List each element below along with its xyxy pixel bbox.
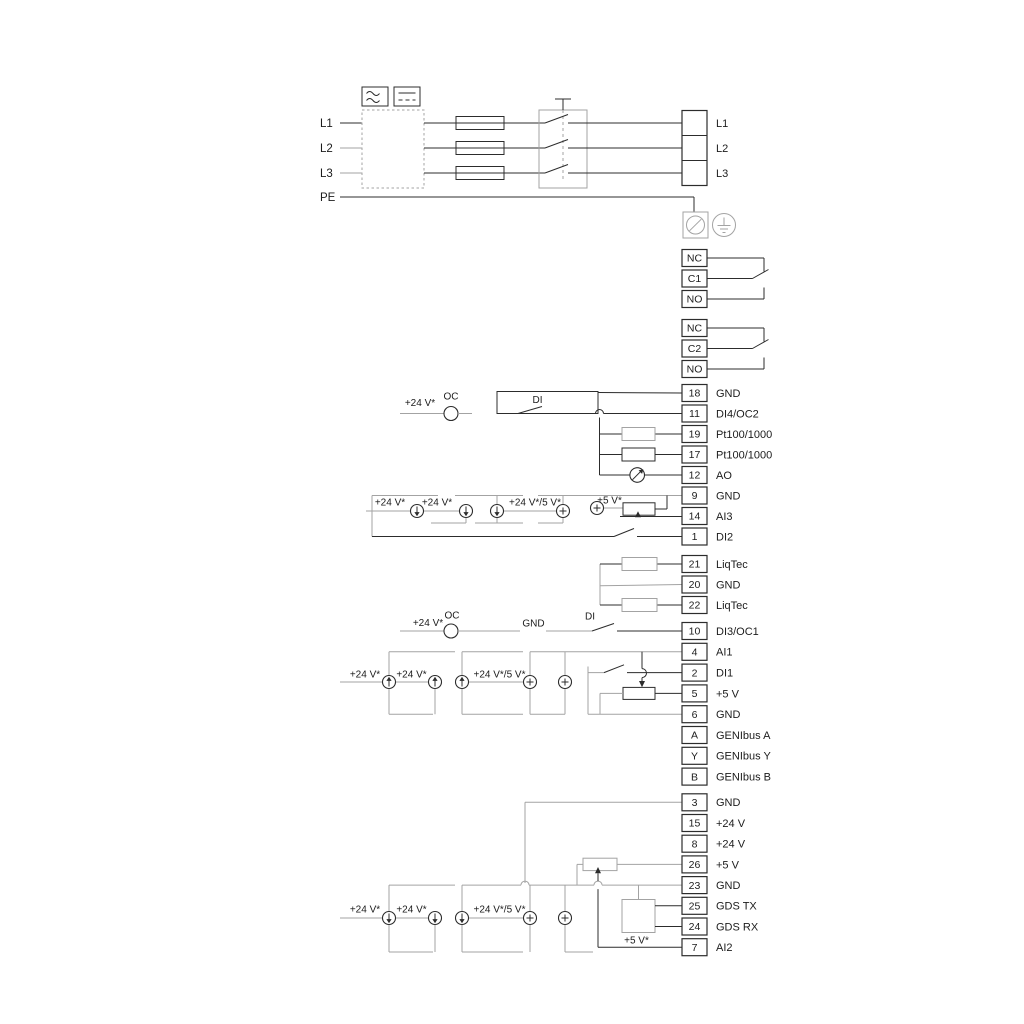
switch-icon	[592, 624, 614, 632]
terminal-id: 10	[689, 626, 701, 638]
power-section	[340, 87, 736, 238]
supply-label: +24 V*/5 V*	[474, 905, 526, 916]
analog-output-gauge-icon	[630, 468, 645, 483]
terminal-cell: 4AI1	[682, 643, 733, 660]
terminal-cell: BGENIbus B	[682, 768, 771, 785]
terminal-id: 6	[692, 709, 698, 721]
terminal-id: 19	[689, 429, 701, 441]
terminal-id: 23	[689, 880, 701, 892]
terminal-cell: 17Pt100/1000	[682, 446, 772, 463]
current-source-icon	[456, 912, 469, 925]
liqtec-wiring	[600, 558, 682, 612]
relay2-contact	[707, 328, 769, 369]
terminal-id: 26	[689, 859, 701, 871]
io-bottom-wiring	[340, 802, 682, 952]
power-output-label: L1	[716, 118, 728, 130]
terminal-label: DI3/OC1	[716, 626, 759, 638]
terminal-id: 4	[692, 647, 698, 659]
io-top-wiring	[366, 392, 682, 537]
terminal-id: 2	[692, 667, 698, 679]
terminal-id: 25	[689, 901, 701, 913]
terminal-id: NC	[687, 323, 703, 335]
voltage-source-icon	[559, 912, 572, 925]
terminal-cell: 10DI3/OC1	[682, 623, 759, 640]
terminal-label: GND	[716, 490, 741, 502]
switch-icon	[614, 529, 634, 537]
terminal-id: NO	[687, 294, 703, 306]
terminal-cell: NC	[682, 320, 707, 337]
terminal-id: Y	[691, 751, 698, 763]
terminal-id: 15	[689, 818, 701, 830]
relay-switch-icon	[707, 340, 769, 349]
terminal-cell: NO	[682, 361, 707, 378]
terminal-cell: 14AI3	[682, 508, 733, 525]
terminal-id: 3	[692, 797, 698, 809]
terminal-label: GENIbus Y	[716, 751, 771, 763]
terminal-cell: NC	[682, 250, 707, 267]
terminal-id: 8	[692, 838, 698, 850]
terminal-label: LiqTec	[716, 600, 748, 612]
terminal-id: 24	[689, 921, 701, 933]
terminal-id: NC	[687, 253, 703, 265]
liqtec-sensor-icon	[622, 558, 657, 571]
terminal-label: +5 V	[716, 859, 740, 871]
di-label: DI	[533, 395, 543, 406]
terminal-id: 22	[689, 600, 701, 612]
current-source-icon	[456, 676, 469, 689]
terminal-label: GND	[716, 709, 741, 721]
power-output-label: L2	[716, 143, 728, 155]
supply-label: +5 V*	[597, 496, 622, 507]
main-contactor	[539, 99, 587, 188]
supply-label: +24 V*	[405, 398, 435, 409]
terminal-label: +24 V	[716, 818, 746, 830]
terminal-label: GDS TX	[716, 901, 757, 913]
earth-ground-icon	[713, 214, 736, 237]
terminal-id: A	[691, 730, 698, 742]
terminal-id: 7	[692, 942, 698, 954]
power-input-label: L2	[320, 143, 333, 155]
terminal-cell: 7AI2	[682, 939, 733, 956]
wire-hop-icon	[596, 410, 604, 414]
terminal-cell: 22LiqTec	[682, 597, 748, 614]
terminal-label: LiqTec	[716, 559, 748, 571]
switch-icon	[518, 407, 542, 414]
terminal-cell: 19Pt100/1000	[682, 426, 772, 443]
terminal-label: Pt100/1000	[716, 449, 772, 461]
terminal-cell: 15+24 V	[682, 815, 746, 832]
terminal-cell: 21LiqTec	[682, 556, 748, 573]
terminal-cell: AGENIbus A	[682, 727, 771, 744]
terminal-cell: C1	[682, 270, 707, 287]
terminal-label: DI2	[716, 531, 733, 543]
terminal-cell: 8+24 V	[682, 835, 746, 852]
relay1-contact	[707, 258, 769, 299]
terminal-label: GDS RX	[716, 921, 759, 933]
terminal-cell: 6GND	[682, 706, 741, 723]
gds-sensor-box	[622, 885, 682, 932]
wire-hop-icon	[594, 881, 602, 885]
terminal-cell: 2DI1	[682, 664, 733, 681]
power-input-label: PE	[320, 192, 336, 204]
terminal-id: 17	[689, 449, 701, 461]
terminal-cell: 11DI4/OC2	[682, 405, 759, 422]
potentiometer-icon	[623, 496, 667, 518]
liqtec-sensor-icon	[622, 599, 657, 612]
power-input-label: L3	[320, 168, 333, 180]
terminal-cell: 20GND	[682, 576, 741, 593]
terminal-label: DI4/OC2	[716, 408, 759, 420]
ac-symbol-icon	[362, 87, 388, 106]
terminal-cell: YGENIbus Y	[682, 747, 771, 764]
terminal-id: 1	[692, 531, 698, 543]
wiring-diagram-page: +24 V* OC DI +24 V* +24 V* +24 V*/5 V* +…	[0, 0, 1024, 1024]
power-output-label: L3	[716, 168, 728, 180]
emc-filter-box	[362, 110, 424, 188]
terminal-label: GENIbus B	[716, 772, 771, 784]
potentiometer-icon	[577, 858, 682, 947]
di-label: DI	[585, 612, 595, 623]
di-box	[497, 392, 598, 414]
oc-label: OC	[445, 611, 460, 622]
current-source-icon	[491, 505, 504, 518]
dc-symbol-icon	[394, 87, 420, 106]
wiring-diagram: +24 V* OC DI +24 V* +24 V* +24 V*/5 V* +…	[0, 0, 1024, 1024]
terminal-id: 9	[692, 490, 698, 502]
terminal-cell: 25GDS TX	[682, 897, 757, 914]
terminal-cell: 18GND	[682, 385, 741, 402]
terminal-cell: 1DI2	[682, 528, 733, 545]
terminal-label: +24 V	[716, 839, 746, 851]
supply-label: +24 V*/5 V*	[474, 670, 526, 681]
supply-label: +24 V*	[350, 670, 380, 681]
switch-icon	[604, 665, 624, 673]
current-source-icon	[383, 912, 396, 925]
supply-label: +24 V*/5 V*	[509, 498, 561, 509]
terminal-cell: 23GND	[682, 877, 741, 894]
terminal-id: 12	[689, 470, 701, 482]
supply-label: +24 V*	[396, 670, 426, 681]
terminal-label: AI2	[716, 942, 733, 954]
terminal-id: B	[691, 771, 698, 783]
terminal-id: NO	[687, 364, 703, 376]
terminal-id: 21	[689, 559, 701, 571]
terminal-cell: 9GND	[682, 487, 741, 504]
terminal-label: AI3	[716, 511, 733, 523]
terminal-id: C1	[688, 273, 702, 285]
terminal-id: 5	[692, 688, 698, 700]
terminal-cell: NO	[682, 291, 707, 308]
terminal-cell: 3GND	[682, 794, 741, 811]
terminal-id: 11	[689, 408, 700, 420]
supply-label: +24 V*	[375, 498, 405, 509]
current-source-icon	[383, 676, 396, 689]
terminal-cell: 5+5 V	[682, 685, 740, 702]
terminal-id: 20	[689, 579, 701, 591]
cable-screw-icon	[683, 212, 708, 238]
supply-label: +24 V*	[350, 905, 380, 916]
pt100-sensor-icon	[622, 448, 655, 461]
terminal-cell: C2	[682, 340, 707, 357]
voltage-source-icon	[559, 676, 572, 689]
oc-label: OC	[444, 392, 459, 403]
relay-switch-icon	[707, 270, 769, 279]
gnd-label: GND	[522, 619, 544, 630]
terminal-label: GENIbus A	[716, 730, 771, 742]
terminal-label: AO	[716, 470, 732, 482]
terminal-label: GND	[716, 797, 741, 809]
terminal-id: 18	[689, 388, 701, 400]
open-collector-icon	[444, 624, 458, 638]
terminal-label: GND	[716, 388, 741, 400]
power-input-label: L1	[320, 118, 333, 130]
terminal-cell: 24GDS RX	[682, 918, 759, 935]
terminal-id: C2	[688, 343, 702, 355]
power-output-block	[682, 111, 707, 186]
terminal-label: DI1	[716, 668, 733, 680]
pt100-sensor-icon	[622, 428, 655, 441]
terminal-cell: 26+5 V	[682, 856, 740, 873]
supply-label: +24 V*	[396, 905, 426, 916]
terminal-label: +5 V	[716, 688, 740, 700]
terminal-cell: 12AO	[682, 467, 732, 484]
terminal-label: GND	[716, 579, 741, 591]
supply-label: +24 V*	[422, 498, 452, 509]
terminal-label: GND	[716, 880, 741, 892]
current-source-icon	[460, 505, 473, 518]
potentiometer-icon	[600, 687, 682, 714]
terminal-id: 14	[689, 511, 701, 523]
current-source-icon	[429, 676, 442, 689]
terminal-label: Pt100/1000	[716, 429, 772, 441]
terminal-label: AI1	[716, 647, 733, 659]
open-collector-icon	[444, 407, 458, 421]
supply-label: +24 V*	[413, 618, 443, 629]
supply-label: +5 V*	[624, 936, 649, 947]
current-source-icon	[429, 912, 442, 925]
